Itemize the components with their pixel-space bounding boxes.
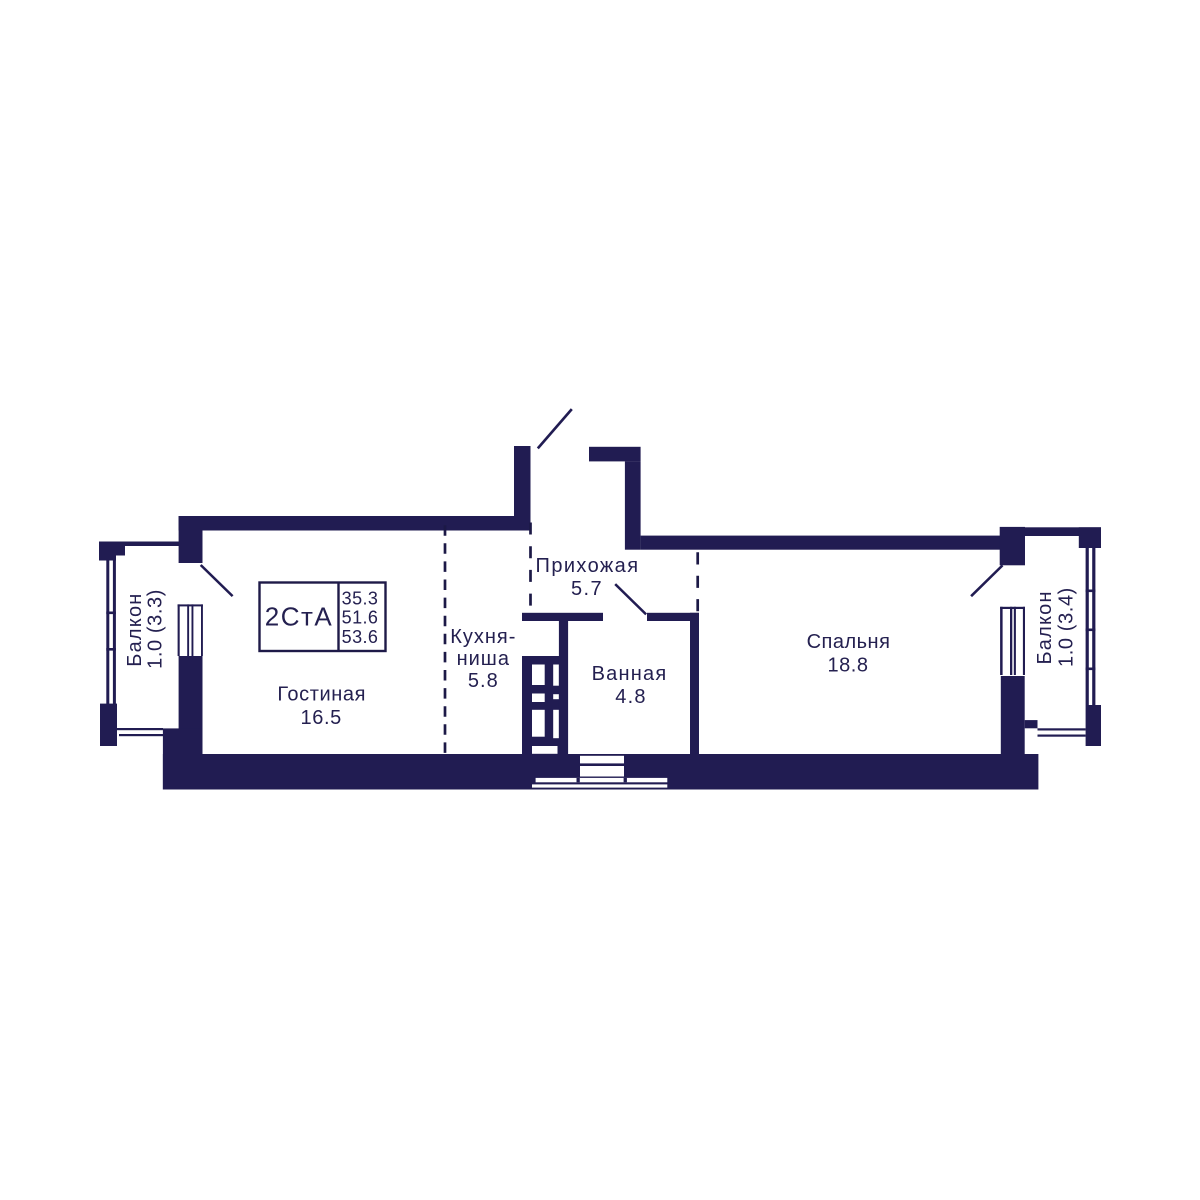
svg-text:35.3: 35.3 [342, 588, 379, 608]
svg-text:Балкон: Балкон [1034, 590, 1056, 664]
svg-text:ниша: ниша [457, 648, 510, 670]
svg-text:Гостиная: Гостиная [277, 684, 366, 706]
svg-text:Ванная: Ванная [592, 663, 668, 685]
svg-text:5.8: 5.8 [468, 670, 499, 692]
svg-text:1.0 (3.3): 1.0 (3.3) [144, 589, 166, 669]
svg-text:5.7: 5.7 [571, 578, 603, 600]
svg-text:16.5: 16.5 [301, 707, 342, 729]
svg-text:51.6: 51.6 [342, 608, 379, 628]
svg-text:2СтА: 2СтА [265, 602, 334, 632]
svg-text:Балкон: Балкон [124, 592, 146, 666]
svg-text:Прихожая: Прихожая [536, 555, 640, 577]
svg-text:1.0 (3.4): 1.0 (3.4) [1056, 587, 1078, 667]
svg-text:4.8: 4.8 [615, 686, 646, 708]
svg-text:Кухня-: Кухня- [450, 626, 516, 648]
svg-text:18.8: 18.8 [828, 655, 869, 677]
svg-text:53.6: 53.6 [342, 627, 379, 647]
svg-text:Спальня: Спальня [807, 631, 891, 653]
